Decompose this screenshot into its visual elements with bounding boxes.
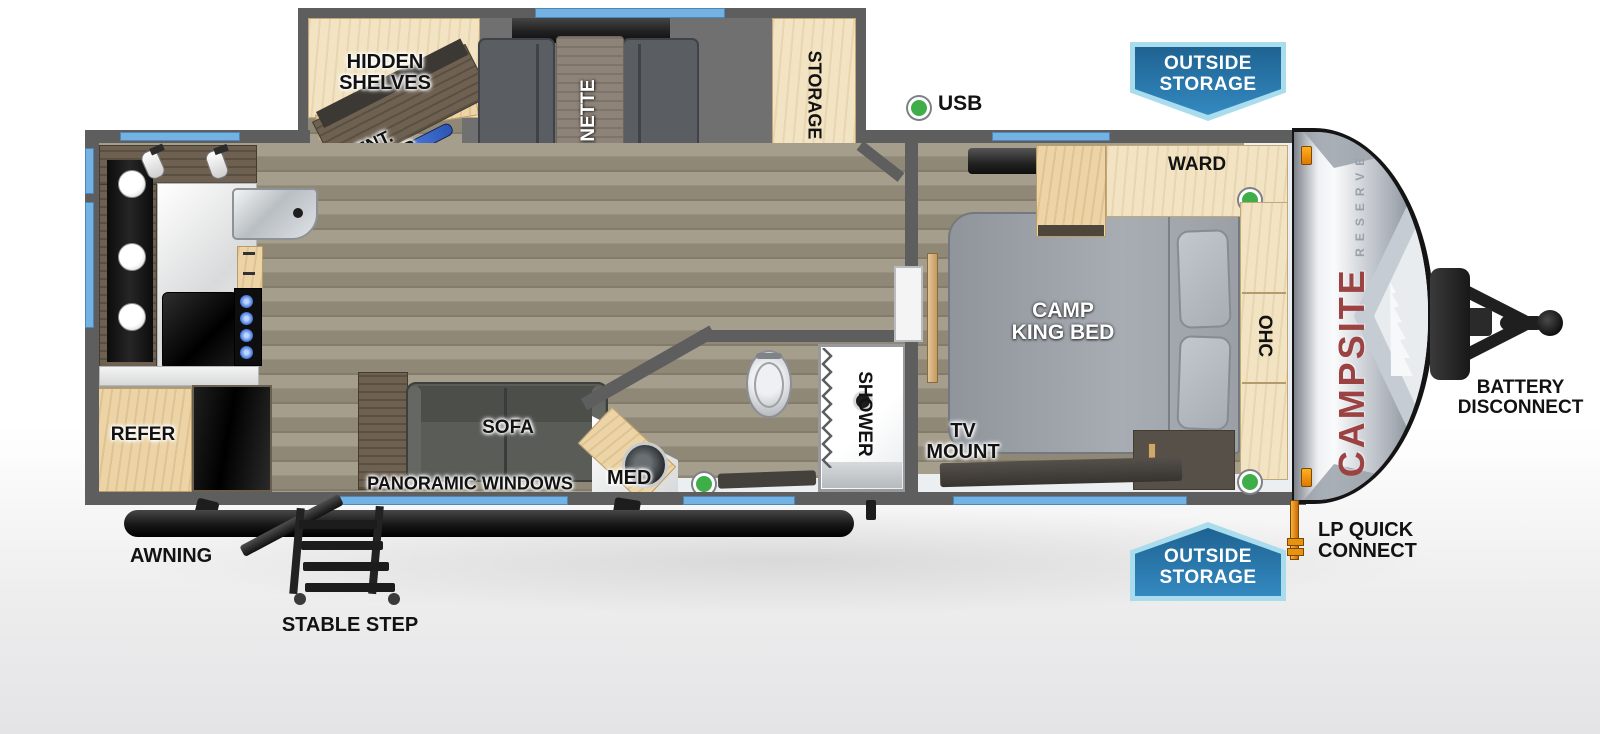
hitch-coupler-knob <box>1537 310 1563 336</box>
outside-storage-banner-top-inner: OUTSIDE STORAGE <box>1135 47 1281 115</box>
ohc-divider-2 <box>1242 382 1286 384</box>
sofa-label: SOFA <box>482 418 534 438</box>
stable-step-tread-4 <box>305 583 395 592</box>
refer-fridge <box>192 385 272 492</box>
bedroom-door <box>927 253 938 383</box>
bed-seam <box>1168 216 1170 450</box>
stable-step-wheel-right <box>388 593 400 605</box>
kitchen-counter-bottom <box>99 366 259 386</box>
awning-roll <box>124 510 854 537</box>
shower-pan <box>822 462 902 488</box>
kitchen-drawer-pull-2 <box>243 272 255 275</box>
window-left-1 <box>85 148 94 194</box>
window-rear-top <box>120 132 240 141</box>
stable-step-tread-2 <box>301 541 383 550</box>
lp-fitting-2 <box>1287 548 1304 556</box>
usb-label: USB <box>938 93 982 115</box>
hidden-shelves-label: HIDDEN SHELVES <box>339 52 431 94</box>
panoramic-windows-label: PANORAMIC WINDOWS <box>367 475 573 494</box>
camp-king-bed-label: CAMP KING BED <box>1012 300 1115 344</box>
end-table <box>358 372 408 490</box>
brand-sub: RESERVE <box>1353 151 1367 257</box>
usb-indicator-dot <box>908 97 930 119</box>
slide-wall-right <box>856 8 866 143</box>
coffee-mug-2 <box>118 243 146 271</box>
front-cap-brand: CAMPSITE RESERVE <box>1331 151 1373 478</box>
burner-4 <box>240 346 253 359</box>
kitchen-sink <box>232 188 318 240</box>
window-bedroom-bottom <box>953 496 1187 505</box>
kitchen-oven <box>162 292 238 370</box>
bedroom-wall-upper <box>905 143 918 268</box>
med-label: MED <box>607 468 651 489</box>
linen-cabinet <box>894 266 923 342</box>
shower-label: SHOWER <box>854 371 874 457</box>
shower-curtain-zigzag <box>820 348 834 468</box>
coffee-mug-3 <box>118 303 146 331</box>
window-sofa-bottom <box>340 496 568 505</box>
burner-2 <box>240 312 253 325</box>
pillow-1 <box>1176 229 1231 329</box>
slide-wall-left <box>298 8 308 143</box>
rv-floorplan-diagram: HIDDEN SHELVES ENT. CENTER FIREPLACE DIN… <box>0 0 1600 734</box>
tv-mount-label: TV MOUNT <box>926 421 999 463</box>
bedroom-side-cabinet-face <box>1038 225 1104 236</box>
outside-storage-banner-top: OUTSIDE STORAGE <box>1130 42 1286 121</box>
burner-3 <box>240 329 253 342</box>
stable-step-tread-1 <box>299 520 377 529</box>
battery-disconnect-bracket <box>1430 268 1470 380</box>
ohc-divider-1 <box>1242 292 1286 294</box>
toilet-hinge <box>756 353 782 359</box>
toilet-seat <box>754 362 784 408</box>
awning-mount-3 <box>866 500 876 520</box>
ohc-label: OHC <box>1254 315 1274 357</box>
bedroom-wall-lower <box>905 340 918 492</box>
brand-name: CAMPSITE <box>1331 267 1373 477</box>
window-bedroom-top <box>992 132 1110 141</box>
lp-quick-connect-label: LP QUICK CONNECT <box>1318 520 1448 562</box>
marker-light-bottom <box>1301 468 1312 487</box>
bath-wall-top <box>700 330 908 342</box>
stable-step-tread-3 <box>303 562 389 571</box>
pillow-2 <box>1176 335 1231 431</box>
battery-disconnect-label: BATTERY DISCONNECT <box>1433 378 1600 418</box>
outside-storage-bottom-label: OUTSIDE STORAGE <box>1159 547 1256 589</box>
burner-1 <box>240 295 253 308</box>
awning-label: AWNING <box>130 546 212 567</box>
stable-step-label: STABLE STEP <box>282 615 418 636</box>
slide-window <box>535 8 725 18</box>
outside-storage-top-label: OUTSIDE STORAGE <box>1159 54 1256 96</box>
ohc-usb-dot <box>1239 471 1261 493</box>
stable-step-wheel-left <box>294 593 306 605</box>
storage-label: STORAGE <box>805 51 824 140</box>
kitchen-drawer-pull-1 <box>243 252 255 255</box>
bedroom-side-cabinet <box>1036 145 1106 237</box>
ward-label: WARD <box>1168 155 1226 175</box>
window-bath-bottom <box>683 496 795 505</box>
marker-light-top <box>1301 146 1312 165</box>
kitchen-faucet <box>293 208 303 218</box>
refer-label: REFER <box>111 425 175 445</box>
sofa-arm-left <box>408 386 421 478</box>
coffee-mug-1 <box>118 170 146 198</box>
window-left-2 <box>85 202 94 328</box>
lp-fitting-1 <box>1287 538 1304 546</box>
